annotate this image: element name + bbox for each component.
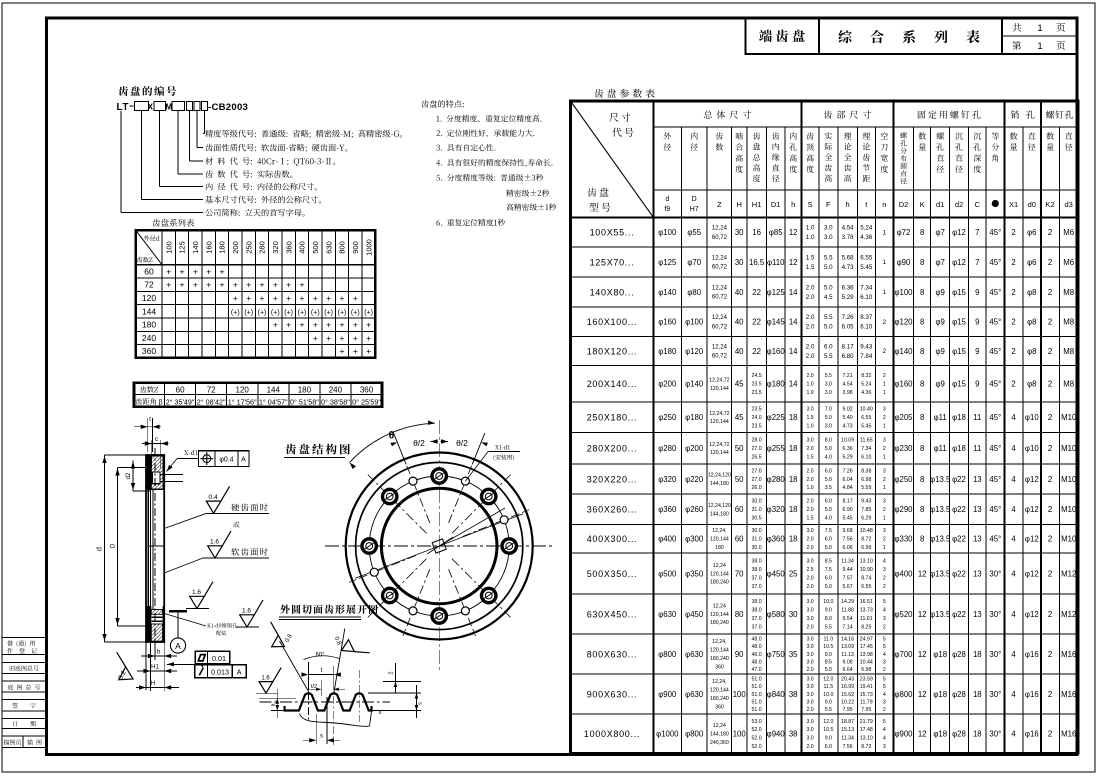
svg-text:3.0: 3.0 xyxy=(806,608,813,614)
svg-text:+: + xyxy=(353,320,358,330)
svg-text:φ8: φ8 xyxy=(1027,318,1036,327)
svg-text:2: 2 xyxy=(883,584,886,590)
svg-text:52.0: 52.0 xyxy=(752,736,762,742)
svg-text:45°: 45° xyxy=(989,413,1001,422)
svg-text:11.34: 11.34 xyxy=(841,559,854,565)
svg-text:d2: d2 xyxy=(955,200,963,209)
svg-text:360: 360 xyxy=(284,241,293,254)
svg-text:15.62: 15.62 xyxy=(841,692,854,698)
svg-text:51.0: 51.0 xyxy=(752,707,762,713)
svg-text:M6: M6 xyxy=(1063,228,1074,237)
svg-text:11: 11 xyxy=(973,444,981,453)
svg-text:12: 12 xyxy=(918,690,927,699)
svg-text:500X350...: 500X350... xyxy=(587,569,638,579)
svg-text:(+): (+) xyxy=(324,309,333,316)
svg-text:φ85: φ85 xyxy=(769,228,783,237)
svg-text:φ8: φ8 xyxy=(1027,347,1036,356)
svg-text:2: 2 xyxy=(1048,318,1052,327)
svg-text:H1: H1 xyxy=(151,664,159,670)
svg-text:2.0: 2.0 xyxy=(806,314,815,321)
svg-text:M10: M10 xyxy=(1061,475,1077,484)
svg-text:4: 4 xyxy=(1011,475,1016,484)
svg-text:8.5: 8.5 xyxy=(825,559,832,565)
svg-text:8: 8 xyxy=(920,413,924,422)
svg-text:φ145: φ145 xyxy=(767,318,786,327)
svg-text:M: M xyxy=(165,103,172,112)
svg-text:K: K xyxy=(920,200,925,209)
svg-text:3.0: 3.0 xyxy=(806,652,813,658)
svg-text:24.97: 24.97 xyxy=(860,637,873,643)
svg-text:φ8: φ8 xyxy=(1027,380,1036,389)
svg-text:11.0: 11.0 xyxy=(823,637,833,643)
svg-text:φ0.4: φ0.4 xyxy=(219,456,233,463)
svg-text:13.73: 13.73 xyxy=(860,608,873,614)
svg-text:630X450...: 630X450... xyxy=(587,609,638,619)
svg-text:23.5: 23.5 xyxy=(752,390,762,396)
svg-text:φ800: φ800 xyxy=(685,729,704,738)
svg-text:5: 5 xyxy=(883,684,886,690)
svg-text:0.01: 0.01 xyxy=(212,654,226,663)
svg-text:12.0: 12.0 xyxy=(823,719,833,725)
svg-text:φ330: φ330 xyxy=(894,535,913,544)
svg-text:φ200: φ200 xyxy=(658,380,677,389)
svg-text:10.09: 10.09 xyxy=(841,438,854,444)
svg-text:40: 40 xyxy=(735,347,744,356)
svg-text:16: 16 xyxy=(752,228,761,237)
svg-text:30.0: 30.0 xyxy=(752,499,762,505)
svg-text:+: + xyxy=(273,280,278,290)
svg-text:240,360: 240,360 xyxy=(710,740,729,746)
svg-text:6.55: 6.55 xyxy=(860,255,873,262)
svg-text:7.56: 7.56 xyxy=(843,744,853,750)
svg-text:φ280: φ280 xyxy=(658,444,677,453)
svg-text:+: + xyxy=(286,280,291,290)
svg-text:+: + xyxy=(313,333,318,343)
svg-text:β: β xyxy=(158,399,162,406)
svg-text:12,24: 12,24 xyxy=(712,315,728,321)
svg-text:φ110: φ110 xyxy=(767,258,785,267)
svg-text:2: 2 xyxy=(1048,258,1052,267)
svg-text:2: 2 xyxy=(1048,288,1052,297)
svg-text:φ10: φ10 xyxy=(1025,444,1039,453)
svg-text:37.0: 37.0 xyxy=(752,576,762,582)
svg-text:S: S xyxy=(808,200,813,209)
svg-text:X: X xyxy=(148,103,154,112)
svg-text:7.56: 7.56 xyxy=(843,537,853,543)
svg-text:M10: M10 xyxy=(1061,505,1077,514)
svg-text:280X200...: 280X200... xyxy=(587,444,638,454)
svg-text:0° 38'58": 0° 38'58" xyxy=(321,397,350,406)
svg-text:φ290: φ290 xyxy=(894,505,913,514)
svg-text:38: 38 xyxy=(789,690,798,699)
svg-text:1: 1 xyxy=(1037,23,1042,34)
svg-text:8.17: 8.17 xyxy=(842,344,855,351)
svg-text:8.38: 8.38 xyxy=(861,468,871,474)
svg-text:φ125: φ125 xyxy=(767,288,786,297)
svg-text:2: 2 xyxy=(883,624,886,630)
svg-text:51.0: 51.0 xyxy=(752,699,762,705)
svg-text:2.0: 2.0 xyxy=(806,667,813,673)
svg-text:6.0: 6.0 xyxy=(825,468,832,474)
svg-text:F: F xyxy=(826,200,831,209)
svg-text:38.0: 38.0 xyxy=(752,599,762,605)
svg-text:90: 90 xyxy=(735,650,744,659)
svg-text:7.34: 7.34 xyxy=(861,446,871,452)
svg-text:θ: θ xyxy=(389,430,395,442)
svg-text:2.0: 2.0 xyxy=(806,353,815,360)
svg-text:52.0: 52.0 xyxy=(752,744,762,750)
svg-text:2: 2 xyxy=(883,415,886,421)
svg-text:φ900: φ900 xyxy=(658,690,677,699)
svg-text:φ840: φ840 xyxy=(767,690,786,699)
svg-text:10.90: 10.90 xyxy=(860,567,873,573)
svg-text:18.87: 18.87 xyxy=(841,719,854,725)
svg-text:12,24: 12,24 xyxy=(712,345,728,351)
svg-text:14: 14 xyxy=(789,380,798,389)
svg-text:80: 80 xyxy=(735,610,744,619)
svg-text:360: 360 xyxy=(715,664,724,670)
svg-text:2.0: 2.0 xyxy=(806,468,813,474)
svg-text:+: + xyxy=(326,320,331,330)
svg-text:+: + xyxy=(180,266,185,276)
svg-text:13.09: 13.09 xyxy=(841,644,854,650)
svg-text:9.43: 9.43 xyxy=(861,499,871,505)
svg-text:+: + xyxy=(193,266,198,276)
svg-text:φ180: φ180 xyxy=(658,347,677,356)
svg-text:5.40: 5.40 xyxy=(843,415,853,421)
svg-text:3.0: 3.0 xyxy=(806,559,813,565)
svg-text:3.5: 3.5 xyxy=(825,485,832,491)
svg-text:φ320: φ320 xyxy=(767,505,786,514)
svg-text:2.0: 2.0 xyxy=(806,477,813,483)
svg-text:120,144: 120,144 xyxy=(710,648,729,654)
svg-text:9.68: 9.68 xyxy=(843,528,853,534)
svg-text:+: + xyxy=(166,266,171,276)
svg-text:φ12: φ12 xyxy=(1025,505,1039,514)
svg-text:18: 18 xyxy=(789,505,798,514)
svg-text:θ/2: θ/2 xyxy=(413,438,425,448)
svg-text:2.0: 2.0 xyxy=(806,285,815,292)
svg-text:240: 240 xyxy=(329,385,343,394)
svg-text:2: 2 xyxy=(1048,610,1052,619)
svg-text:1.0: 1.0 xyxy=(806,485,813,491)
svg-text:24.0: 24.0 xyxy=(752,415,762,421)
svg-text:4: 4 xyxy=(1011,690,1016,699)
svg-text:180: 180 xyxy=(298,385,312,394)
svg-text:φ16: φ16 xyxy=(1025,650,1039,659)
svg-text:+: + xyxy=(353,346,358,356)
svg-text:11.79: 11.79 xyxy=(860,699,873,705)
svg-text:100X55...: 100X55... xyxy=(590,228,635,238)
svg-text:Z: Z xyxy=(717,200,722,209)
svg-text:φ70: φ70 xyxy=(687,258,701,267)
svg-text:2.0: 2.0 xyxy=(806,545,813,551)
svg-text:13: 13 xyxy=(973,535,982,544)
svg-text:d2: d2 xyxy=(126,472,132,479)
svg-text:6.0: 6.0 xyxy=(825,537,832,543)
svg-text:8: 8 xyxy=(920,288,924,297)
svg-text:10.0: 10.0 xyxy=(823,692,833,698)
svg-text:1: 1 xyxy=(883,229,887,236)
svg-text:70: 70 xyxy=(735,569,744,578)
svg-text:2.0: 2.0 xyxy=(806,499,813,505)
svg-text:5.0: 5.0 xyxy=(824,324,833,331)
svg-text:12.0: 12.0 xyxy=(823,677,833,683)
svg-text:φ320: φ320 xyxy=(658,475,677,484)
svg-text:2: 2 xyxy=(1048,228,1052,237)
svg-text:30°: 30° xyxy=(989,569,1001,578)
svg-text:d: d xyxy=(97,547,104,551)
svg-text:3: 3 xyxy=(883,567,886,573)
svg-text:2: 2 xyxy=(1048,475,1052,484)
svg-text:30.0: 30.0 xyxy=(752,528,762,534)
svg-text:φ120: φ120 xyxy=(894,318,913,327)
svg-text:3.0: 3.0 xyxy=(806,727,813,733)
svg-text:13.10: 13.10 xyxy=(860,559,873,565)
svg-text:45: 45 xyxy=(735,413,744,422)
svg-text:6.98: 6.98 xyxy=(861,477,871,483)
svg-text:φ160: φ160 xyxy=(658,318,677,327)
svg-text:+: + xyxy=(353,293,358,303)
svg-text:φ100: φ100 xyxy=(658,228,677,237)
svg-text:6.99: 6.99 xyxy=(861,545,871,551)
svg-text:LT: LT xyxy=(117,102,129,113)
svg-text:60: 60 xyxy=(176,385,185,394)
svg-text:6.10: 6.10 xyxy=(860,294,873,301)
svg-text:3: 3 xyxy=(883,744,886,750)
svg-text:12: 12 xyxy=(918,610,927,619)
svg-text:8: 8 xyxy=(920,444,924,453)
svg-text:5.0: 5.0 xyxy=(824,264,833,271)
svg-text:1: 1 xyxy=(883,390,886,396)
svg-text:φ9: φ9 xyxy=(935,380,944,389)
svg-text:6.64: 6.64 xyxy=(843,667,853,673)
svg-text:φ225: φ225 xyxy=(767,413,786,422)
svg-text:200X140...: 200X140... xyxy=(587,379,638,389)
svg-text:φ22: φ22 xyxy=(952,475,966,484)
svg-text:2: 2 xyxy=(389,671,395,674)
svg-text:10.40: 10.40 xyxy=(860,407,873,413)
svg-text:3.0: 3.0 xyxy=(806,616,813,622)
svg-text:M12: M12 xyxy=(1061,610,1076,619)
svg-text:3: 3 xyxy=(883,407,886,413)
svg-text:3.0: 3.0 xyxy=(806,599,813,605)
svg-text:12: 12 xyxy=(918,729,927,738)
svg-text:7.95: 7.95 xyxy=(843,707,853,713)
svg-text:400: 400 xyxy=(298,241,307,254)
svg-text:45°: 45° xyxy=(989,228,1001,237)
svg-text:K2: K2 xyxy=(1046,200,1055,209)
svg-text:2.0: 2.0 xyxy=(806,537,813,543)
svg-text:φ15: φ15 xyxy=(952,380,966,389)
svg-text:5.5: 5.5 xyxy=(825,624,832,630)
svg-text:φ1000: φ1000 xyxy=(656,729,679,738)
svg-text:31.0: 31.0 xyxy=(752,507,762,513)
svg-text:1.0: 1.0 xyxy=(806,382,813,388)
svg-text:120,144: 120,144 xyxy=(710,612,729,618)
svg-text:2: 2 xyxy=(1048,347,1052,356)
svg-text:30°: 30° xyxy=(989,650,1001,659)
svg-text:φ13.5: φ13.5 xyxy=(930,535,951,544)
svg-text:t: t xyxy=(149,416,151,423)
svg-text:+: + xyxy=(233,293,238,303)
svg-text:12,24: 12,24 xyxy=(713,603,726,609)
svg-text:3.0: 3.0 xyxy=(806,684,813,690)
svg-text:120,144: 120,144 xyxy=(710,571,729,577)
svg-text:180,240: 180,240 xyxy=(710,696,729,702)
svg-text:30: 30 xyxy=(735,228,744,237)
svg-text:+: + xyxy=(300,293,305,303)
svg-text:+: + xyxy=(313,293,318,303)
svg-text:24.5: 24.5 xyxy=(752,373,762,379)
svg-text:14: 14 xyxy=(789,288,798,297)
svg-text:3.0: 3.0 xyxy=(825,423,832,429)
svg-text:M12: M12 xyxy=(1061,569,1076,578)
svg-text:4: 4 xyxy=(1011,505,1016,514)
svg-text:9: 9 xyxy=(975,380,979,389)
svg-text:48.0: 48.0 xyxy=(752,659,762,665)
svg-text:2: 2 xyxy=(1048,535,1052,544)
svg-text:2.0: 2.0 xyxy=(806,344,815,351)
svg-text:1: 1 xyxy=(883,289,887,296)
svg-text:9: 9 xyxy=(975,347,979,356)
svg-text:12,24: 12,24 xyxy=(712,226,728,232)
svg-text:1.6: 1.6 xyxy=(210,539,219,546)
svg-text:4.36: 4.36 xyxy=(860,234,873,241)
svg-text:9.0: 9.0 xyxy=(825,736,832,742)
svg-text:13: 13 xyxy=(973,569,982,578)
svg-text:+: + xyxy=(193,280,198,290)
svg-text:8: 8 xyxy=(920,535,924,544)
svg-text:5.5: 5.5 xyxy=(824,255,833,262)
svg-text:13: 13 xyxy=(973,610,982,619)
svg-text:φ125: φ125 xyxy=(658,258,677,267)
svg-text:4: 4 xyxy=(883,559,886,565)
svg-text:17.45: 17.45 xyxy=(860,644,873,650)
svg-text:M8: M8 xyxy=(1063,380,1074,389)
svg-text:140X80...: 140X80... xyxy=(590,287,635,297)
svg-text:φ100: φ100 xyxy=(894,288,913,297)
svg-text:60: 60 xyxy=(735,535,744,544)
svg-text:1° 04'57": 1° 04'57" xyxy=(259,397,288,406)
svg-text:30°: 30° xyxy=(989,610,1001,619)
svg-text:M10: M10 xyxy=(1061,535,1077,544)
svg-text:φ13.5: φ13.5 xyxy=(930,505,951,514)
svg-text:15.13: 15.13 xyxy=(841,727,854,733)
svg-text:8: 8 xyxy=(920,258,924,267)
svg-text:1: 1 xyxy=(883,454,886,460)
svg-text:5.0: 5.0 xyxy=(825,415,832,421)
svg-text:(+): (+) xyxy=(338,309,347,316)
svg-text:4.73: 4.73 xyxy=(842,264,855,271)
svg-text:5.45: 5.45 xyxy=(843,516,853,522)
svg-text:120,144: 120,144 xyxy=(710,450,729,456)
svg-text:11.65: 11.65 xyxy=(860,438,873,444)
svg-text:φ230: φ230 xyxy=(894,444,913,453)
svg-text:8: 8 xyxy=(920,380,924,389)
svg-text:(+): (+) xyxy=(311,309,320,316)
svg-text:10.5: 10.5 xyxy=(823,644,833,650)
svg-text:10.44: 10.44 xyxy=(860,659,873,665)
svg-text:φ12: φ12 xyxy=(1025,569,1039,578)
svg-text:φ12: φ12 xyxy=(1025,535,1039,544)
svg-text:φ15: φ15 xyxy=(952,288,966,297)
svg-text:60,72: 60,72 xyxy=(712,324,728,330)
svg-text:31.0: 31.0 xyxy=(752,537,762,543)
svg-text:4: 4 xyxy=(883,692,886,698)
svg-text:2: 2 xyxy=(1048,505,1052,514)
svg-text:φ630: φ630 xyxy=(658,610,677,619)
svg-text:M16: M16 xyxy=(1061,729,1076,738)
svg-text:5.59: 5.59 xyxy=(861,485,871,491)
svg-text:φ580: φ580 xyxy=(767,610,786,619)
svg-text:+: + xyxy=(260,280,265,290)
svg-text:8.32: 8.32 xyxy=(861,373,871,379)
svg-text:180: 180 xyxy=(715,545,724,551)
svg-text:144,180: 144,180 xyxy=(710,481,729,487)
svg-text:φ140: φ140 xyxy=(685,380,704,389)
svg-text:φ18: φ18 xyxy=(952,413,966,422)
svg-text:1.5: 1.5 xyxy=(806,516,813,522)
svg-text:38.0: 38.0 xyxy=(752,608,762,614)
svg-text:12,24,72: 12,24,72 xyxy=(709,442,729,448)
svg-text:30: 30 xyxy=(735,258,744,267)
svg-text:15.73: 15.73 xyxy=(860,692,873,698)
svg-text:φ15: φ15 xyxy=(952,347,966,356)
svg-text:18: 18 xyxy=(973,690,982,699)
svg-text:8: 8 xyxy=(920,228,924,237)
svg-text:d1: d1 xyxy=(936,200,944,209)
svg-text:6.55: 6.55 xyxy=(861,415,871,421)
svg-text:6.0: 6.0 xyxy=(824,344,833,351)
svg-text:27.0: 27.0 xyxy=(752,446,762,452)
svg-text:45°: 45° xyxy=(989,380,1001,389)
svg-text:5: 5 xyxy=(883,719,886,725)
svg-text:144,180: 144,180 xyxy=(710,511,729,517)
svg-text:+: + xyxy=(180,280,185,290)
svg-text:f9: f9 xyxy=(664,206,670,213)
svg-text:2: 2 xyxy=(883,667,886,673)
svg-text:8.17: 8.17 xyxy=(843,499,853,505)
svg-text:3.0: 3.0 xyxy=(806,644,813,650)
svg-text:φ12: φ12 xyxy=(1025,610,1039,619)
svg-text:4: 4 xyxy=(1011,535,1016,544)
svg-text:2: 2 xyxy=(883,319,887,326)
svg-text:D1: D1 xyxy=(771,200,781,209)
svg-text:60: 60 xyxy=(144,266,154,276)
svg-text:φ90: φ90 xyxy=(897,258,911,267)
svg-text:+: + xyxy=(366,333,371,343)
svg-text:φ800: φ800 xyxy=(894,690,913,699)
svg-text:φ400: φ400 xyxy=(894,569,913,578)
svg-text:60°: 60° xyxy=(315,653,325,659)
svg-text:φ630: φ630 xyxy=(685,650,704,659)
svg-text:16.51: 16.51 xyxy=(860,599,873,605)
svg-text:1.5: 1.5 xyxy=(806,255,815,262)
svg-text:D: D xyxy=(111,543,117,548)
svg-text:45°: 45° xyxy=(989,505,1001,514)
svg-text:X1: X1 xyxy=(1009,200,1018,209)
svg-text:5.0: 5.0 xyxy=(825,507,832,513)
svg-text:n: n xyxy=(882,200,886,209)
svg-text:3.0: 3.0 xyxy=(806,407,813,413)
svg-text:+: + xyxy=(246,293,251,303)
svg-text:1: 1 xyxy=(1037,41,1042,52)
svg-text:φ9: φ9 xyxy=(935,318,944,327)
svg-text:18: 18 xyxy=(789,535,798,544)
svg-text:M10: M10 xyxy=(1061,413,1077,422)
svg-text:37.0: 37.0 xyxy=(752,584,762,590)
